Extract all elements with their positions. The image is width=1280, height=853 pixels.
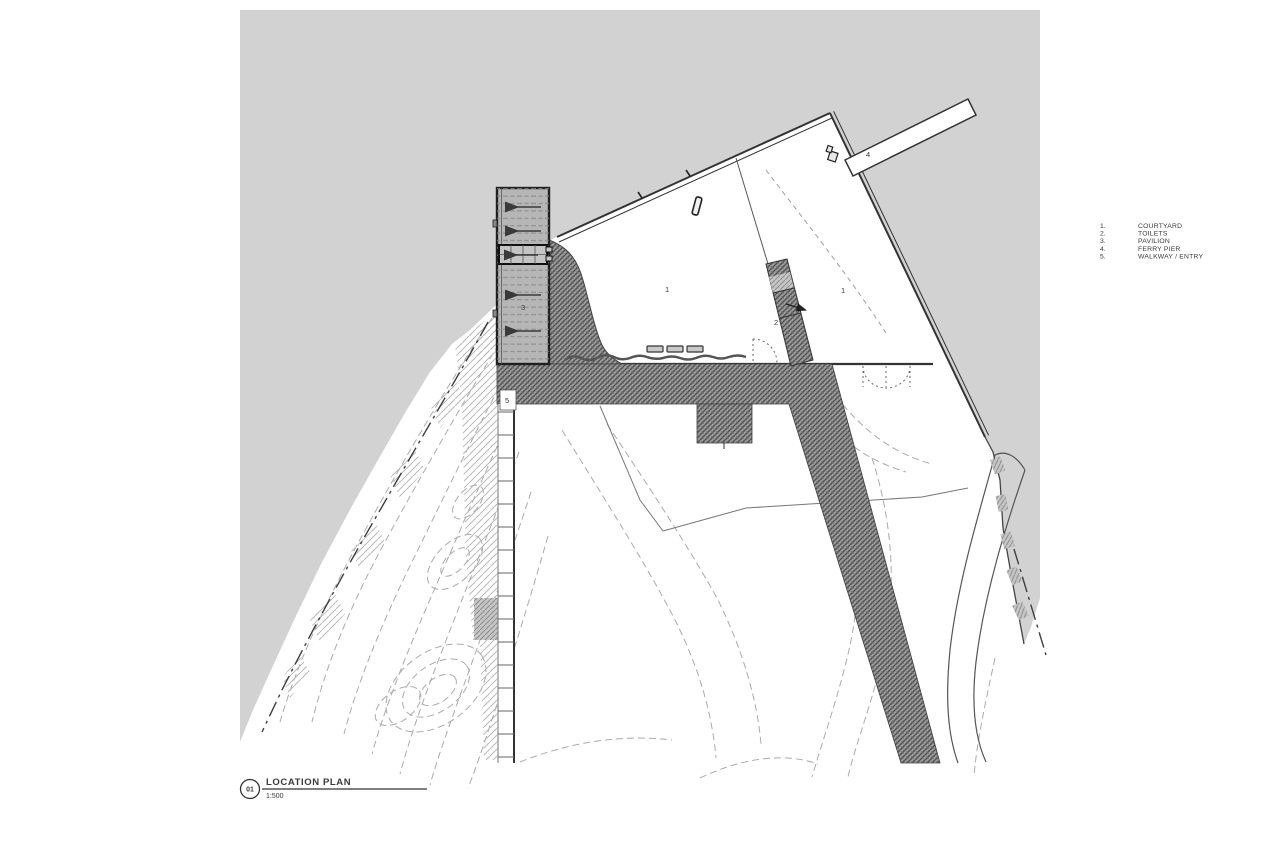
legend-label-1: COURTYARD <box>1138 223 1182 230</box>
drawing-number: 01 <box>246 787 254 794</box>
drawing-scale: 1:500 <box>266 793 284 800</box>
label-toilets: 2 <box>774 318 778 327</box>
pavilion-block <box>493 188 552 364</box>
label-pavilion: 3 <box>521 303 525 312</box>
site-paths <box>600 406 968 531</box>
label-courtyard-left: 1 <box>665 285 669 294</box>
location-plan-canvas: 1 1 2 3 4 5 1. COURTYARD 2. TOILETS 3. P… <box>0 0 1280 853</box>
legend-num-4: 4. <box>1100 246 1106 253</box>
legend-label-2: TOILETS <box>1138 231 1168 238</box>
label-walkway: 5 <box>505 396 509 405</box>
legend: 1. COURTYARD 2. TOILETS 3. PAVILION 4. F… <box>1100 223 1203 260</box>
rock-patch-dense <box>474 598 498 640</box>
label-ferry-pier: 4 <box>866 150 870 159</box>
padlock-icon <box>826 146 838 162</box>
legend-label-5: WALKWAY / ENTRY <box>1138 253 1203 260</box>
drawing-sheet: 1 1 2 3 4 5 1. COURTYARD 2. TOILETS 3. P… <box>0 0 1280 853</box>
rock-outcrop <box>549 240 622 364</box>
pavilion-bridge-deck <box>499 245 552 264</box>
legend-label-3: PAVILION <box>1138 238 1170 245</box>
label-courtyard-right: 1 <box>841 286 845 295</box>
legend-num-5: 5. <box>1100 253 1106 260</box>
legend-num-3: 3. <box>1100 238 1106 245</box>
hard-landscape-hatch <box>497 364 940 763</box>
drawing-title: LOCATION PLAN <box>266 777 351 788</box>
walkway-steps <box>498 390 516 763</box>
toilets-block <box>766 259 813 366</box>
wall-break <box>872 295 881 306</box>
legend-num-1: 1. <box>1100 223 1106 230</box>
flag-element <box>692 197 702 216</box>
legend-num-2: 2. <box>1100 231 1106 238</box>
legend-label-4: FERRY PIER <box>1138 246 1181 253</box>
title-block: 01 LOCATION PLAN 1:500 <box>241 777 428 800</box>
courtyard-benches <box>647 346 703 352</box>
